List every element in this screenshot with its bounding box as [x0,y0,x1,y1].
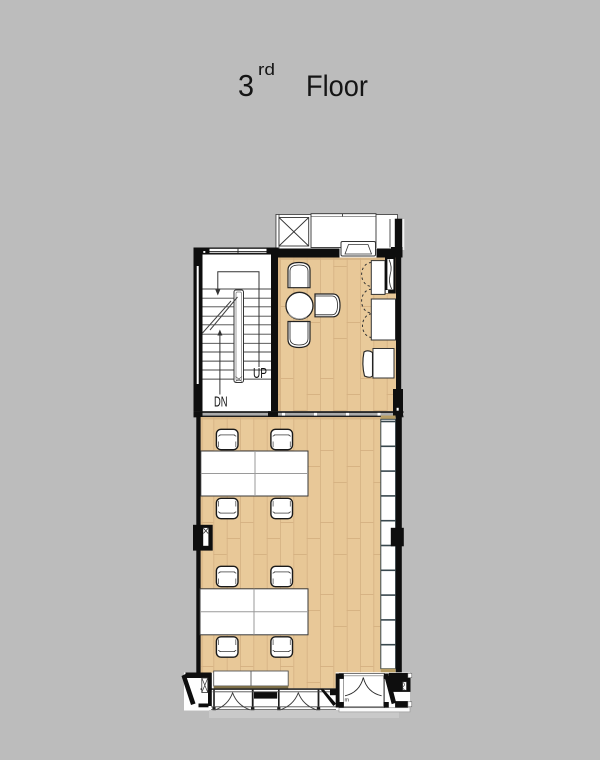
svg-text:3: 3 [238,68,254,103]
svg-text:DN: DN [214,394,228,410]
svg-text:UP: UP [253,365,267,382]
svg-text:m: m [345,698,350,704]
svg-text:Floor: Floor [306,70,368,103]
svg-text:rd: rd [258,60,275,79]
